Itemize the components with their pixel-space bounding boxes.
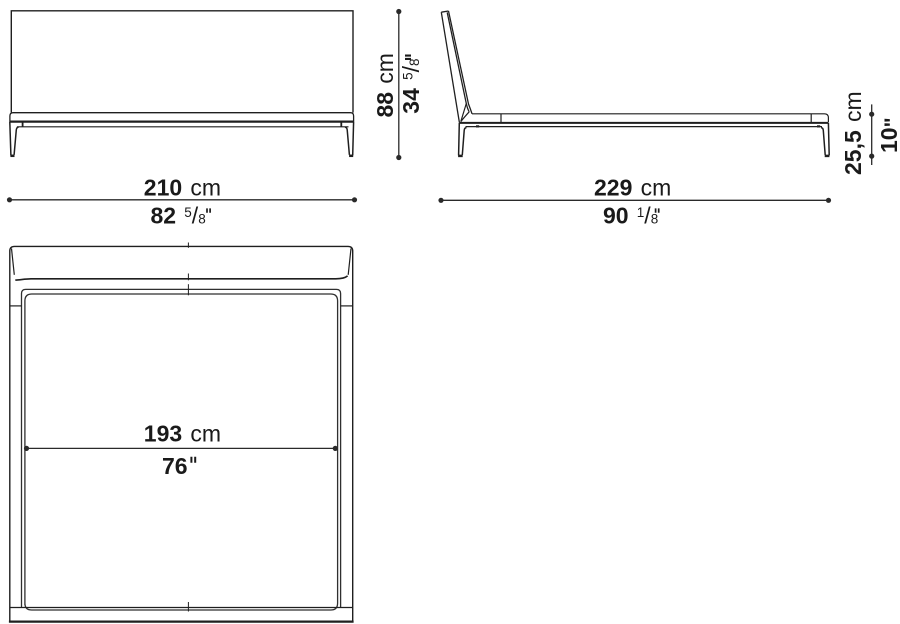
svg-text:76: 76: [162, 453, 188, 479]
svg-text:82 5/8: 82 5/8: [151, 203, 206, 229]
svg-text:210 cm: 210 cm: [144, 175, 221, 201]
svg-text:229 cm: 229 cm: [594, 175, 671, 201]
svg-text:25,5 cm: 25,5 cm: [840, 91, 866, 175]
svg-text:90 1/8: 90 1/8: [603, 203, 658, 229]
svg-text:34 5/8: 34 5/8: [398, 58, 424, 113]
svg-text:193 cm: 193 cm: [144, 421, 221, 447]
svg-text:88 cm: 88 cm: [372, 53, 398, 117]
